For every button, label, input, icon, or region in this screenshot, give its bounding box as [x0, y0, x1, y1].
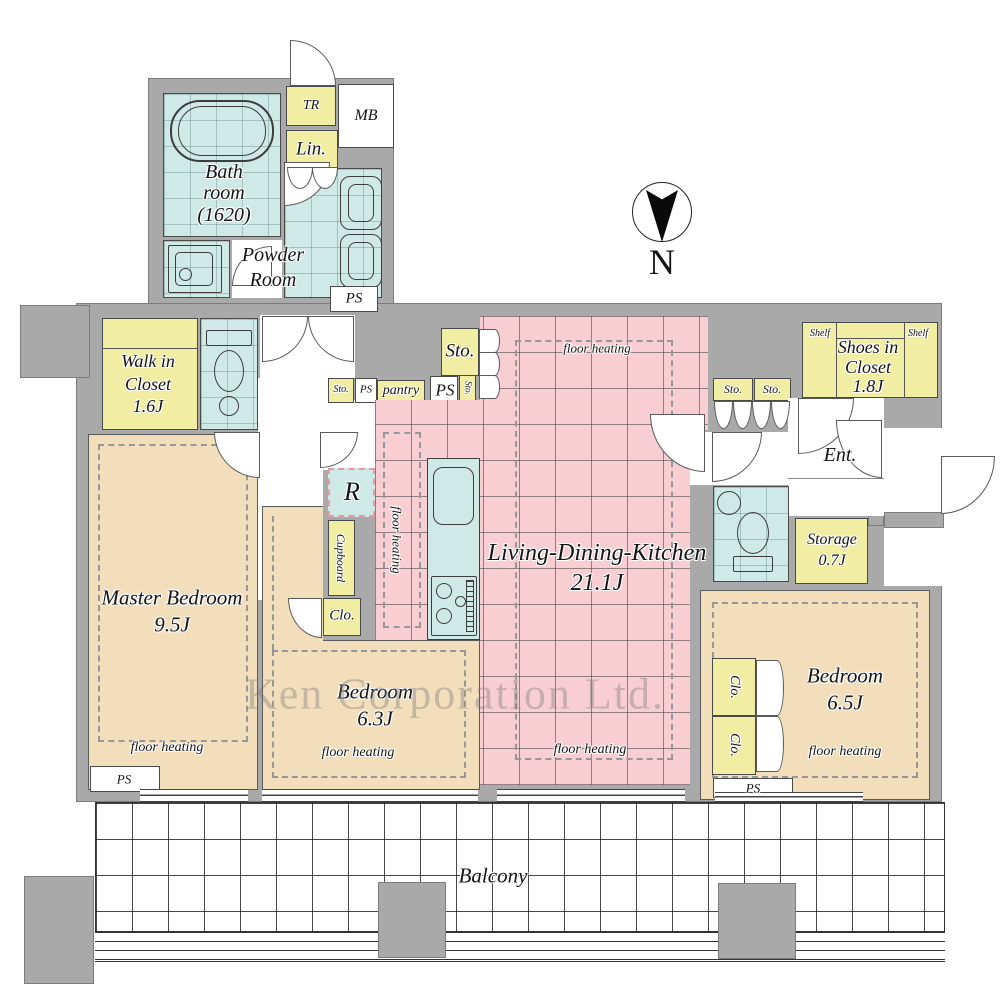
window	[140, 789, 248, 802]
window	[715, 792, 863, 802]
sink-bowl	[348, 184, 374, 222]
entrance-label: Ent.	[824, 445, 857, 465]
sto-label: Sto.	[333, 385, 348, 395]
floor-heating-label: floor heating	[391, 506, 404, 574]
ps-label: PS	[436, 382, 455, 399]
stove-burner	[455, 596, 466, 607]
floor-plan: N Bath room (1620) TR MB Lin. Powder Roo…	[0, 0, 1000, 1000]
linen-label: Lin.	[296, 140, 326, 159]
bathroom-label: room	[203, 183, 244, 203]
toilet-bowl	[214, 350, 244, 392]
compass-north-label: N	[649, 244, 675, 280]
stove-burner	[436, 583, 452, 599]
ldk-size-label: 21.1J	[571, 571, 624, 595]
wic-size-label: 1.6J	[133, 397, 164, 415]
washing-machine-drain	[179, 268, 192, 281]
wic-shelf-line	[102, 348, 198, 349]
wall	[884, 512, 944, 528]
mb-label: MB	[354, 108, 377, 124]
balcony-railing	[95, 932, 945, 962]
entrance-recess	[884, 428, 944, 586]
bifold-door-icon	[756, 716, 784, 772]
storage-size-label: 0.7J	[818, 553, 845, 569]
bedroom65-label: Bedroom	[807, 666, 883, 687]
tr-label: TR	[303, 99, 319, 113]
balcony-label: Balcony	[459, 866, 528, 887]
bathroom-label: Bath	[205, 162, 243, 182]
shelf-label: Shelf	[908, 329, 928, 339]
shoes-closet-line	[836, 322, 837, 398]
ps-label: PS	[360, 385, 372, 396]
storage-room	[795, 518, 868, 584]
bedroom65-size-label: 6.5J	[827, 693, 863, 714]
sto-label: Sto.	[763, 383, 781, 395]
toilet-icon	[206, 330, 252, 346]
floor-heating-label: floor heating	[563, 342, 631, 355]
entry-step-line	[788, 478, 884, 479]
clo-label: Clo.	[727, 675, 741, 699]
floor-heating-line	[272, 516, 274, 650]
kitchen-sink-icon	[433, 467, 474, 525]
powder-room-label: Room	[250, 270, 297, 290]
wic-label: Walk in	[121, 352, 175, 370]
toilet-bowl	[737, 512, 769, 554]
cupboard-label: Cupboard	[335, 534, 347, 582]
bifold-door-icon	[756, 660, 784, 716]
clo-label: Clo.	[727, 733, 741, 757]
stove-burner	[436, 608, 452, 624]
window	[497, 789, 685, 802]
floor-heating-label: floor heating	[554, 743, 627, 757]
floor-heating-label: floor heating	[322, 746, 395, 760]
pillar	[378, 882, 446, 958]
shoes-closet-label: Shoes in	[838, 338, 899, 356]
watermark: Ken Corporation Ltd.	[245, 669, 665, 720]
pantry-label: pantry	[383, 384, 420, 398]
wic-label: Closet	[125, 375, 171, 393]
master-bedroom-size-label: 9.5J	[154, 615, 190, 636]
shoes-closet-size-label: 1.8J	[853, 377, 884, 395]
storage-label: Storage	[807, 532, 857, 548]
bifold-door-icon	[479, 352, 500, 376]
clo-label: Clo.	[329, 609, 354, 624]
pillar	[718, 883, 796, 959]
toilet-stool	[219, 396, 239, 416]
window	[262, 789, 478, 802]
refrigerator-label: R	[344, 479, 360, 505]
master-bedroom-label: Master Bedroom	[102, 588, 243, 609]
shoes-closet-line	[904, 322, 905, 398]
pillar	[20, 305, 90, 378]
ps-label: PS	[746, 782, 760, 795]
door-arc	[290, 40, 336, 86]
pillar	[24, 876, 94, 984]
bathtub-inner	[178, 106, 266, 156]
floor-heating-label: floor heating	[809, 745, 882, 759]
ldk-label: Living-Dining-Kitchen	[488, 541, 707, 565]
floor-heating-label: floor heating	[131, 741, 204, 755]
shoes-closet-label: Closet	[845, 358, 891, 376]
bifold-door-icon	[479, 375, 500, 399]
ps-label: PS	[346, 292, 363, 307]
powder-room-label: Powder	[242, 245, 304, 265]
sink-bowl	[348, 242, 374, 280]
bifold-door-icon	[479, 329, 500, 353]
toilet-icon	[733, 556, 773, 572]
front-door-arc	[941, 456, 995, 514]
shelf-label: Shelf	[810, 329, 830, 339]
stove-grill	[466, 580, 474, 632]
corner-sink-icon	[717, 491, 741, 515]
sto-label: Sto.	[724, 383, 742, 395]
bathroom-size-label: (1620)	[197, 205, 250, 225]
sto-label: Sto.	[464, 381, 473, 395]
ps-label: PS	[117, 773, 131, 786]
sto-label: Sto.	[445, 342, 474, 361]
